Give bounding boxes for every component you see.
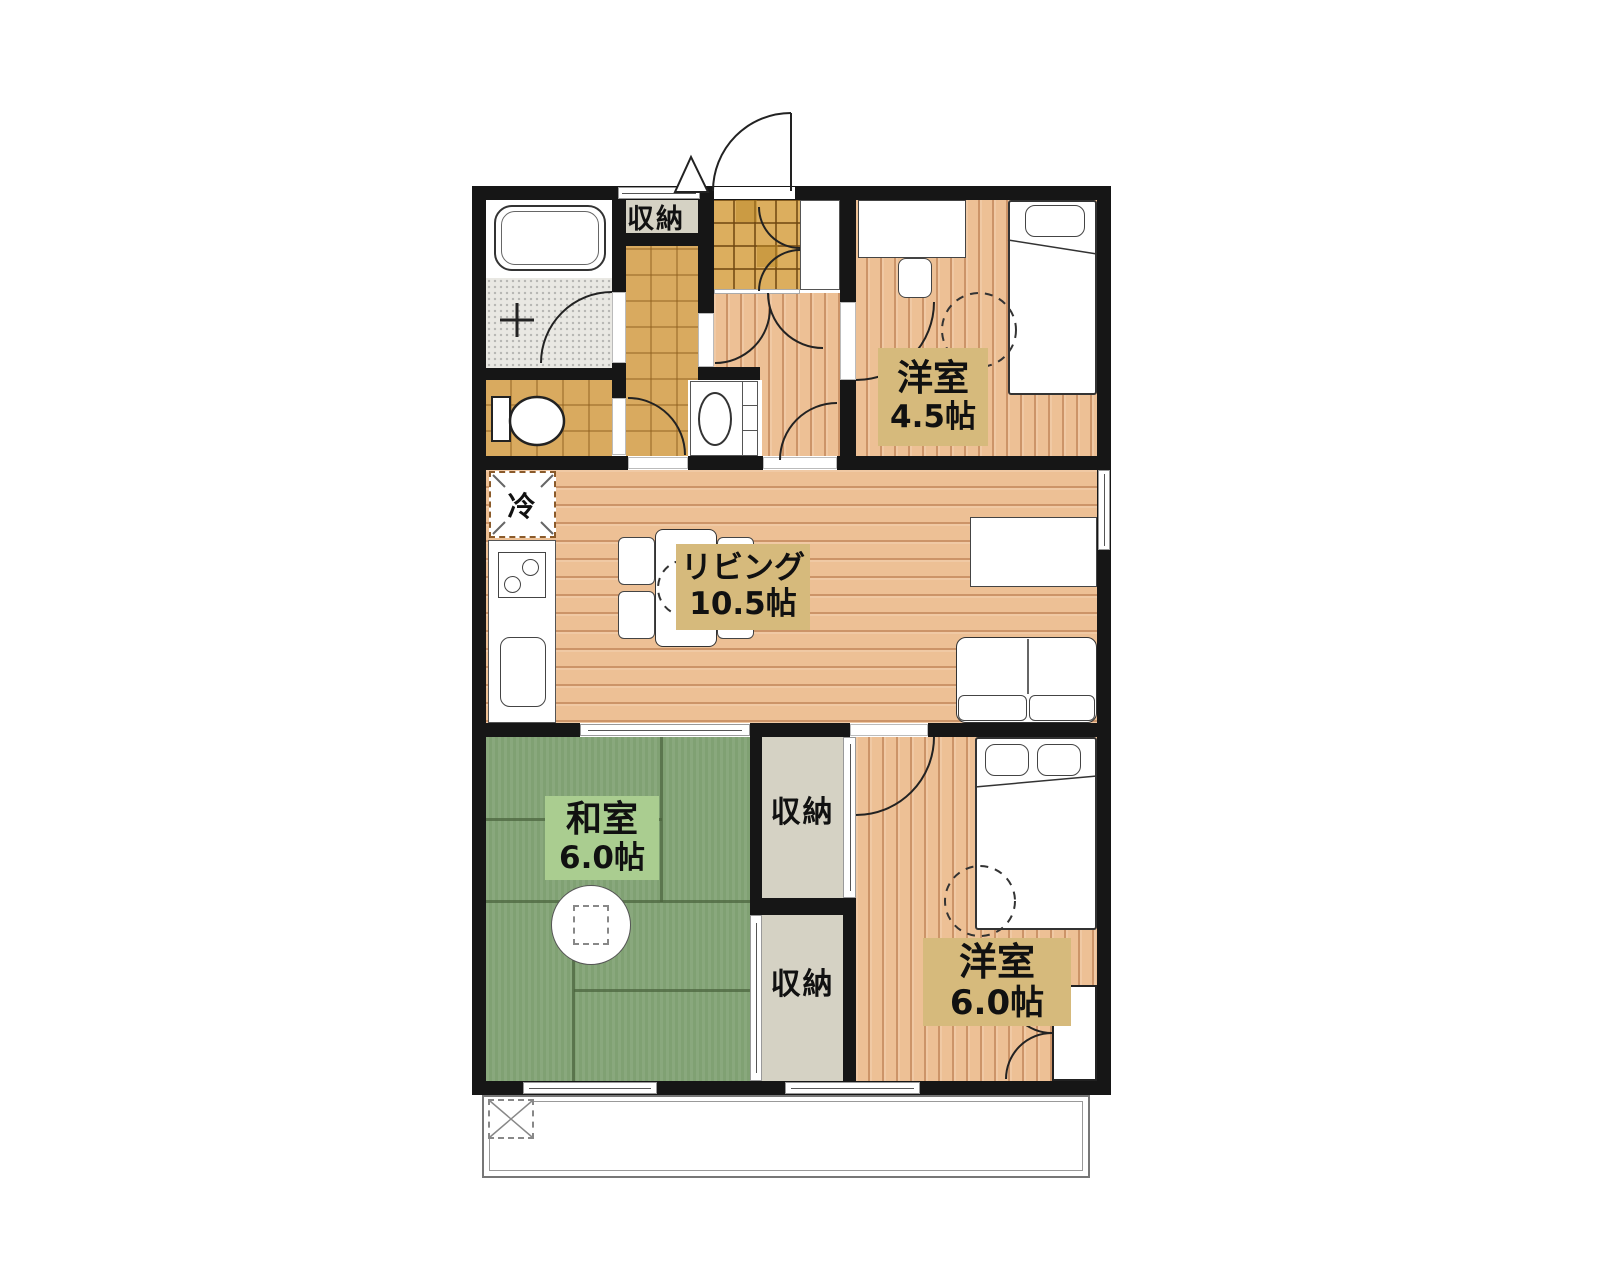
bathroom-washing-area	[486, 278, 612, 368]
door-opening-toilet	[612, 398, 626, 455]
western-6-size: 6.0帖	[950, 984, 1044, 1023]
wall	[928, 723, 1097, 737]
genkan-step	[714, 289, 800, 294]
door-opening-hall-corridor	[698, 313, 714, 367]
storage-entry-text: 収納	[627, 197, 685, 236]
storage-upper-text: 収納	[771, 787, 835, 831]
wall	[750, 723, 850, 737]
desk	[858, 200, 966, 258]
sliding-door-storage-lower	[750, 915, 762, 1081]
label-storage-lower: 収納	[762, 958, 843, 1004]
door-opening-western-4-5	[840, 302, 856, 380]
pillow	[1037, 744, 1081, 776]
bathtub-inner-line	[501, 211, 599, 265]
western-6-name: 洋室	[959, 941, 1035, 985]
pillow	[1025, 205, 1085, 237]
washbasin-side-cabinet	[742, 381, 758, 456]
genkan-tile-dark	[757, 245, 778, 267]
stove-burner	[504, 576, 521, 593]
sofa-seat-cushion	[1029, 695, 1095, 721]
window-japanese-room	[523, 1082, 657, 1094]
western-4-5-name: 洋室	[897, 358, 969, 399]
japanese-6-name: 和室	[566, 799, 638, 840]
washbasin-side-line	[742, 405, 758, 406]
sliding-door-living-japanese	[580, 724, 750, 736]
desk-chair	[898, 258, 932, 298]
floor-plan: 冷	[0, 0, 1600, 1280]
table-center-mark	[573, 905, 609, 945]
wall	[486, 368, 626, 380]
front-door-opening	[714, 187, 795, 199]
window-western-6	[785, 1082, 920, 1094]
label-storage-upper: 収納	[762, 786, 843, 832]
tatami-seam	[574, 989, 750, 992]
stove	[498, 552, 546, 598]
refrigerator-char: 冷	[507, 485, 537, 525]
ac-outdoor-unit	[488, 1099, 534, 1139]
sliding-door-storage-upper	[843, 737, 856, 898]
balcony-inner-rail	[489, 1101, 1083, 1171]
front-door-arc	[713, 113, 791, 191]
wall	[840, 380, 856, 462]
shoe-cabinet	[800, 200, 840, 290]
wall-outer-right	[1097, 186, 1111, 1095]
door-opening-corridor-living	[763, 457, 837, 469]
door-opening-hall-living	[628, 457, 688, 469]
living-size: 10.5帖	[689, 587, 797, 623]
sofa-seat-cushion	[958, 695, 1027, 721]
pillow	[985, 744, 1029, 776]
western-4-5-size: 4.5帖	[890, 400, 976, 436]
toilet-tank	[491, 396, 511, 442]
window-living-right	[1098, 470, 1110, 550]
storage-lower-text: 収納	[771, 959, 835, 1003]
dining-chair	[618, 537, 655, 585]
genkan-tile-dark	[736, 200, 757, 222]
wall	[843, 915, 856, 1081]
wall	[486, 456, 628, 470]
wall	[698, 200, 714, 313]
tv-board	[970, 517, 1097, 587]
wall	[840, 200, 856, 302]
dining-chair	[618, 591, 655, 639]
label-western-4-5: 洋室 4.5帖	[878, 348, 988, 446]
wall	[750, 898, 856, 915]
wall	[688, 456, 763, 470]
door-opening-western-6	[850, 724, 928, 736]
wall	[698, 367, 760, 380]
wall	[486, 723, 580, 737]
wall	[750, 737, 762, 915]
washbasin-bowl	[698, 392, 732, 446]
wall-outer-left	[472, 186, 486, 1095]
label-japanese-6: 和室 6.0帖	[545, 796, 659, 880]
label-western-6: 洋室 6.0帖	[923, 938, 1071, 1026]
door-opening-bathroom	[612, 292, 626, 363]
refrigerator-label: 冷	[489, 471, 556, 538]
living-name: リビング	[681, 551, 805, 587]
wall	[837, 456, 1097, 470]
japanese-6-size: 6.0帖	[559, 841, 645, 877]
label-storage-entry: 収納	[612, 198, 700, 234]
washbasin-side-line	[742, 430, 758, 431]
kitchen-sink	[500, 637, 546, 707]
stove-burner	[522, 559, 539, 576]
tatami-seam	[660, 737, 663, 902]
label-living: リビング 10.5帖	[676, 544, 810, 630]
